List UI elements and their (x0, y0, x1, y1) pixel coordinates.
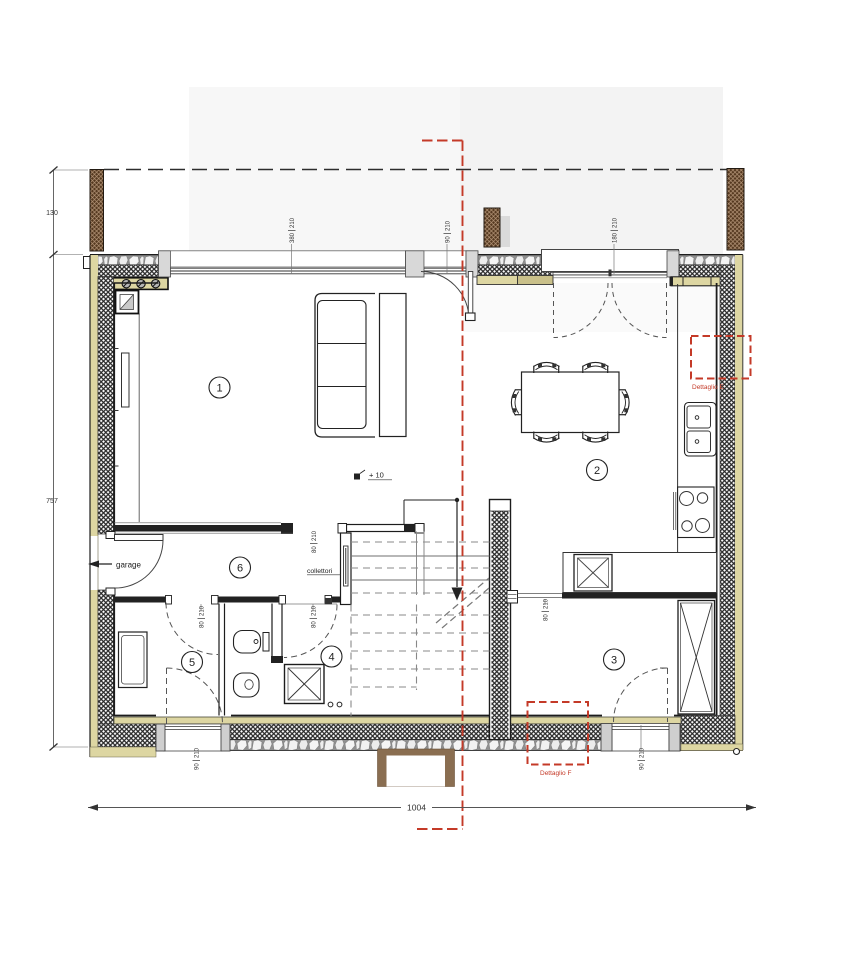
svg-text:80: 80 (312, 546, 318, 553)
svg-text:210: 210 (195, 747, 201, 758)
svg-text:380: 380 (290, 232, 296, 243)
svg-text:6: 6 (237, 563, 243, 575)
svg-text:1004: 1004 (407, 803, 426, 813)
svg-text:+ 10: + 10 (369, 471, 384, 480)
svg-text:garage: garage (116, 561, 141, 570)
svg-text:130: 130 (46, 210, 58, 217)
svg-text:210: 210 (640, 747, 646, 758)
svg-text:90: 90 (195, 763, 201, 770)
svg-text:2: 2 (594, 465, 600, 477)
svg-text:collettori: collettori (307, 568, 333, 575)
svg-text:210: 210 (312, 530, 318, 541)
svg-text:Dettaglio F: Dettaglio F (540, 770, 571, 777)
svg-text:3: 3 (611, 655, 617, 667)
svg-text:Dettaglio E: Dettaglio E (692, 384, 724, 391)
svg-text:210: 210 (312, 605, 318, 616)
svg-text:90: 90 (640, 763, 646, 770)
svg-text:210: 210 (446, 220, 452, 231)
svg-text:4: 4 (328, 652, 334, 664)
svg-text:210: 210 (290, 217, 296, 228)
svg-text:210: 210 (544, 598, 550, 609)
svg-text:757: 757 (46, 498, 58, 505)
svg-text:1: 1 (216, 383, 222, 395)
svg-text:5: 5 (189, 657, 195, 669)
svg-text:180: 180 (613, 232, 619, 243)
svg-text:210: 210 (200, 605, 206, 616)
svg-text:210: 210 (613, 217, 619, 228)
svg-text:80: 80 (544, 614, 550, 621)
svg-text:80: 80 (200, 621, 206, 628)
svg-text:90: 90 (446, 236, 452, 243)
svg-text:80: 80 (312, 621, 318, 628)
